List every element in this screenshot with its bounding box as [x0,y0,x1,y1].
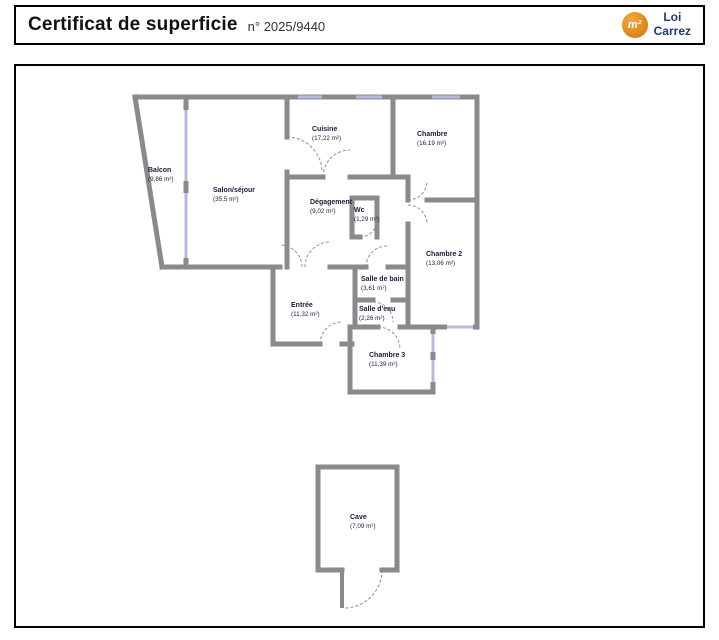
room-label-cave: Cave (7,09 m²) [350,514,376,530]
svg-text:Salon/séjour: Salon/séjour [213,187,255,194]
svg-text:(35,5 m²): (35,5 m²) [213,196,239,203]
room-label-chambre-3: Chambre 3 (11,39 m²) [369,352,405,368]
svg-text:Chambre 2: Chambre 2 [426,251,462,258]
svg-text:(11,32 m²): (11,32 m²) [291,311,320,318]
room-label-cuisine: Cuisine (17,22 m²) [312,126,341,142]
svg-text:(13,06 m²): (13,06 m²) [426,260,455,267]
m2-badge-icon: m² [622,12,648,38]
certificate-number: n° 2025/9440 [248,19,326,34]
svg-text:Cuisine: Cuisine [312,126,337,133]
svg-text:Salle de bain: Salle de bain [361,276,404,283]
svg-text:(11,39 m²): (11,39 m²) [369,361,398,368]
floor-plan-frame: Balcon (9,86 m²) Salon/séjour (35,5 m²) … [14,64,705,628]
svg-text:(9,86 m²): (9,86 m²) [148,176,174,183]
room-label-chambre-2: Chambre 2 (13,06 m²) [426,251,462,267]
loi-carrez-logo: m² Loi Carrez [622,11,691,39]
room-label-chambre: Chambre (16,19 m²) [417,131,447,147]
room-label-salon-sejour: Salon/séjour (35,5 m²) [213,187,255,203]
loi-carrez-label: Loi Carrez [654,11,691,39]
svg-text:Salle d'eau: Salle d'eau [359,306,395,313]
room-label-salle-de-bain: Salle de bain (3,61 m²) [361,276,404,292]
svg-text:Chambre: Chambre [417,131,447,138]
svg-text:Cave: Cave [350,514,367,521]
svg-text:Balcon: Balcon [148,167,171,174]
svg-text:(1,29 m²): (1,29 m²) [354,216,380,223]
svg-text:(9,02 m²): (9,02 m²) [310,208,336,215]
svg-text:(17,22 m²): (17,22 m²) [312,135,341,142]
floor-plan-drawing: Balcon (9,86 m²) Salon/séjour (35,5 m²) … [16,66,703,626]
svg-text:(3,61 m²): (3,61 m²) [361,285,387,292]
room-label-entree: Entrée (11,32 m²) [291,302,320,318]
page-title: Certificat de superficie [28,14,238,36]
svg-text:Chambre 3: Chambre 3 [369,352,405,359]
room-label-degagement: Dégagement (9,02 m²) [310,199,353,215]
certificate-header: Certificat de superficie n° 2025/9440 m²… [14,5,705,45]
svg-text:(7,09 m²): (7,09 m²) [350,523,376,530]
svg-text:(2,26 m²): (2,26 m²) [359,315,385,322]
room-label-salle-d-eau: Salle d'eau (2,26 m²) [359,306,395,322]
cellar-walls [318,467,397,608]
svg-text:Entrée: Entrée [291,302,313,309]
svg-text:Wc: Wc [354,207,365,214]
svg-text:Dégagement: Dégagement [310,199,353,206]
svg-text:(16,19 m²): (16,19 m²) [417,140,446,147]
room-label-balcon: Balcon (9,86 m²) [148,167,174,183]
